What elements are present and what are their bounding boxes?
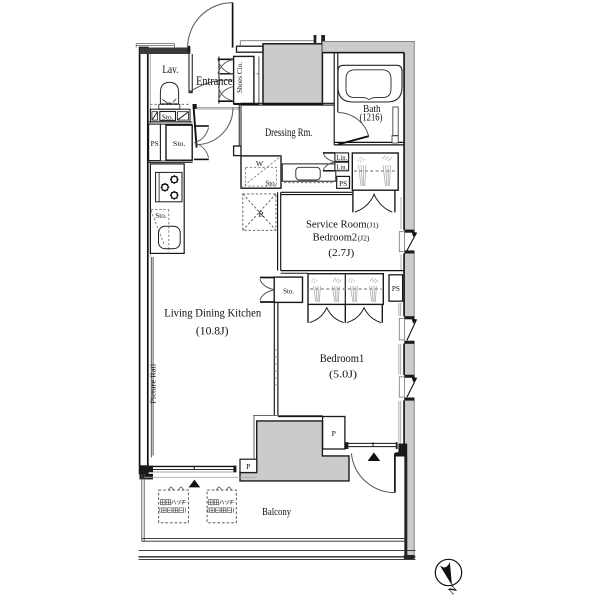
svg-text:Sto.: Sto. [155, 211, 167, 220]
svg-text:(5.0J): (5.0J) [329, 369, 357, 381]
svg-text:W: W [256, 159, 264, 168]
svg-text:Shoes Clo.: Shoes Clo. [236, 62, 244, 93]
svg-text:Lav.: Lav. [162, 62, 178, 76]
svg-text:Lin.: Lin. [336, 154, 347, 162]
svg-text:Living Dining Kitchen: Living Dining Kitchen [164, 306, 261, 320]
svg-text:Sto.: Sto. [265, 180, 276, 188]
svg-text:Service Room: Service Room [306, 220, 367, 231]
svg-text:Sto.: Sto. [162, 113, 174, 121]
svg-text:PS: PS [151, 140, 159, 148]
svg-text:Sto.: Sto. [173, 139, 186, 148]
svg-text:R: R [258, 209, 264, 219]
svg-text:P: P [246, 462, 250, 471]
svg-text:Entrance: Entrance [196, 74, 233, 88]
svg-text:Lin.: Lin. [336, 164, 347, 172]
svg-text:(1216): (1216) [360, 113, 383, 124]
svg-text:PS: PS [392, 285, 400, 293]
svg-text:Bedroom1: Bedroom1 [320, 353, 365, 365]
svg-text:Picture Rail: Picture Rail [148, 364, 157, 404]
svg-text:(J1): (J1) [367, 220, 379, 229]
svg-text:Bedroom2: Bedroom2 [313, 233, 358, 244]
svg-text:Balcony: Balcony [262, 506, 292, 518]
svg-text:(J2): (J2) [358, 233, 370, 242]
svg-text:(2.7J): (2.7J) [328, 247, 354, 259]
svg-text:Sto.: Sto. [283, 287, 294, 295]
svg-text:(10.8J): (10.8J) [196, 326, 229, 338]
svg-text:P: P [332, 429, 336, 438]
svg-text:PS: PS [339, 180, 347, 188]
svg-text:Dressing Rm.: Dressing Rm. [265, 125, 313, 139]
